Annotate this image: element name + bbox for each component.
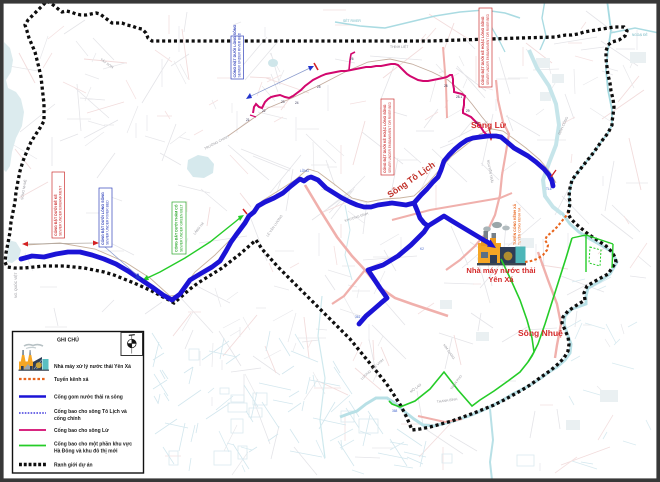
svg-text:CỐNG ĐẶT DƯỚI THẢM CỎ: CỐNG ĐẶT DƯỚI THẢM CỎ	[174, 204, 179, 252]
svg-text:cống chính: cống chính	[54, 415, 81, 422]
svg-text:CỐNG ĐẶT DƯỚI LÒNG SÔNG: CỐNG ĐẶT DƯỚI LÒNG SÔNG	[232, 25, 237, 78]
svg-text:Nhà máy xử lý nước thải Yên Xá: Nhà máy xử lý nước thải Yên Xá	[54, 364, 131, 370]
svg-text:SEWER UNDER EMBANKMENT OR RIVE: SEWER UNDER EMBANKMENT OR RIVER BED	[388, 101, 392, 173]
svg-text:SEWER UNDER RIVER BED: SEWER UNDER RIVER BED	[106, 200, 110, 245]
svg-text:Cống gom nước thải ra sông: Cống gom nước thải ra sông	[54, 394, 123, 401]
svg-text:NG. QUỐC VIỆT: NG. QUỐC VIỆT	[13, 272, 18, 298]
svg-text:Cống bao cho sông Lừ: Cống bao cho sông Lừ	[54, 427, 109, 434]
svg-text:26: 26	[350, 57, 354, 61]
svg-text:SÉT RIVER: SÉT RIVER	[343, 18, 361, 23]
svg-text:Yên Xá: Yên Xá	[488, 275, 514, 284]
svg-text:23: 23	[281, 100, 285, 104]
svg-text:SEWER UNDER GREEN BELT: SEWER UNDER GREEN BELT	[180, 204, 184, 252]
svg-text:CỐNG ĐẶT DƯỚI LÒNG SÔNG: CỐNG ĐẶT DƯỚI LÒNG SÔNG	[100, 192, 105, 245]
svg-text:25: 25	[317, 85, 321, 89]
svg-text:TUYEN CONG KENH XA: TUYEN CONG KENH XA	[518, 207, 522, 245]
svg-text:Sông Nhuệ: Sông Nhuệ	[518, 328, 563, 338]
svg-text:Ranh giới dự án: Ranh giới dự án	[54, 463, 93, 469]
svg-text:THịNH LIỆT: THịNH LIỆT	[390, 44, 408, 49]
svg-text:Cống bao cho sông Tô Lịch và: Cống bao cho sông Tô Lịch và	[54, 408, 127, 415]
svg-text:SEWER UNDER EMBANKMENT: SEWER UNDER EMBANKMENT	[59, 186, 63, 236]
svg-text:GHI CHÚ: GHI CHÚ	[57, 337, 79, 344]
svg-text:28.1: 28.1	[456, 95, 462, 99]
svg-text:Nhà máy nước thải: Nhà máy nước thải	[466, 266, 535, 275]
svg-text:TL6: TL6	[546, 187, 552, 191]
svg-text:CỐNG ĐẶT DƯỚI ĐÊ KÈ: CỐNG ĐẶT DƯỚI ĐÊ KÈ	[53, 194, 58, 236]
svg-text:Tuyến kênh xả: Tuyến kênh xả	[54, 376, 89, 383]
svg-text:CỐNG ĐẶT DƯỚI KÈ HOẶC LÒNG SÔN: CỐNG ĐẶT DƯỚI KÈ HOẶC LÒNG SÔNG	[480, 16, 485, 85]
svg-text:CỐNG ĐẶT DƯỚI KÈ HOẶC LÒNG SÔN: CỐNG ĐẶT DƯỚI KÈ HOẶC LÒNG SÔNG	[382, 104, 387, 173]
svg-text:361: 361	[355, 315, 361, 319]
svg-text:Cống bao cho một phần khu vực: Cống bao cho một phần khu vực	[54, 441, 132, 448]
svg-text:368: 368	[392, 409, 398, 413]
svg-text:SEWER UNDER EMBANKMENT OR RIVE: SEWER UNDER EMBANKMENT OR RIVER BED	[486, 13, 490, 85]
svg-text:Hà Đông và khu đô thị mới: Hà Đông và khu đô thị mới	[54, 449, 118, 455]
svg-text:21: 21	[246, 118, 250, 122]
svg-text:29: 29	[466, 109, 470, 113]
svg-text:30: 30	[475, 121, 479, 125]
svg-text:NGOẠI ĐÊ: NGOẠI ĐÊ	[632, 32, 648, 37]
svg-text:28: 28	[444, 84, 448, 88]
svg-text:SEWER UNDER RIVER BED: SEWER UNDER RIVER BED	[238, 32, 242, 77]
svg-text:K2: K2	[420, 247, 424, 251]
svg-text:LỒNG: LỒNG	[300, 168, 310, 173]
svg-text:TUYẾN CỐNG KÊNH XẢ: TUYẾN CỐNG KÊNH XẢ	[512, 203, 517, 245]
svg-text:22: 22	[262, 109, 266, 113]
svg-text:24: 24	[295, 101, 299, 105]
